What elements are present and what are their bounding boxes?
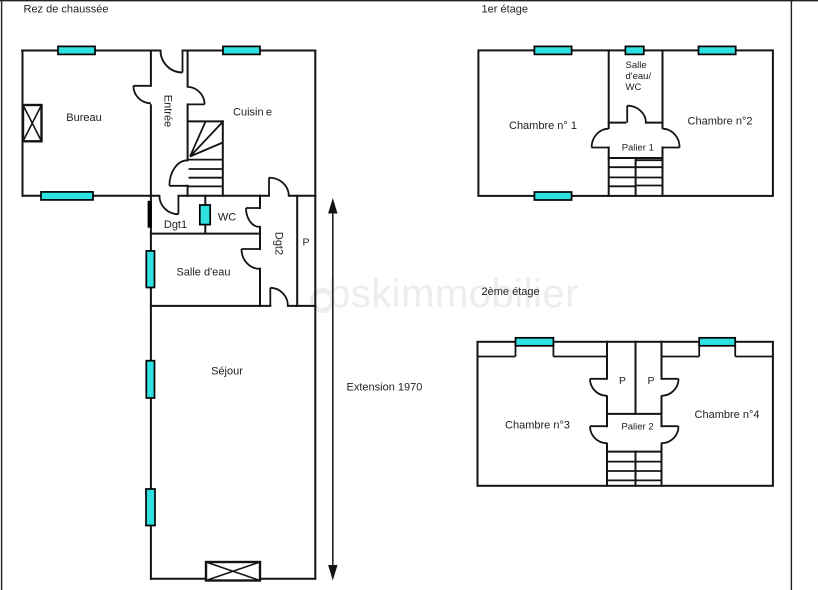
svg-text:Extension 1970: Extension 1970 [347,382,423,394]
svg-text:Cuisin e: Cuisin e [233,107,272,119]
svg-text:Salle: Salle [626,60,647,71]
svg-text:Chambre n°3: Chambre n°3 [505,420,570,432]
svg-text:P: P [647,375,654,387]
svg-text:d'eau/: d'eau/ [626,71,652,82]
svg-text:Chambre n°4: Chambre n°4 [695,409,760,421]
svg-text:Palier 1: Palier 1 [622,142,654,153]
svg-text:2ème étage: 2ème étage [482,286,540,298]
svg-text:Dgt2: Dgt2 [273,232,285,255]
svg-text:1er étage: 1er étage [482,4,528,16]
svg-text:WC: WC [218,212,236,224]
svg-text:Salle d'eau: Salle d'eau [176,267,230,279]
svg-text:Chambre n°2: Chambre n°2 [688,116,753,128]
svg-text:Dgt1: Dgt1 [164,219,187,231]
svg-text:bskimmobilier: bskimmobilier [328,272,579,316]
svg-text:Rez de chaussée: Rez de chaussée [24,4,109,16]
svg-text:Chambre n° 1: Chambre n° 1 [509,120,577,132]
svg-text:Palier 2: Palier 2 [621,421,653,432]
svg-text:Entrée: Entrée [162,95,174,127]
svg-text:P: P [302,237,309,249]
svg-text:Séjour: Séjour [211,366,243,378]
svg-text:WC: WC [626,82,642,93]
svg-text:Bureau: Bureau [66,112,101,124]
svg-text:P: P [619,375,626,387]
